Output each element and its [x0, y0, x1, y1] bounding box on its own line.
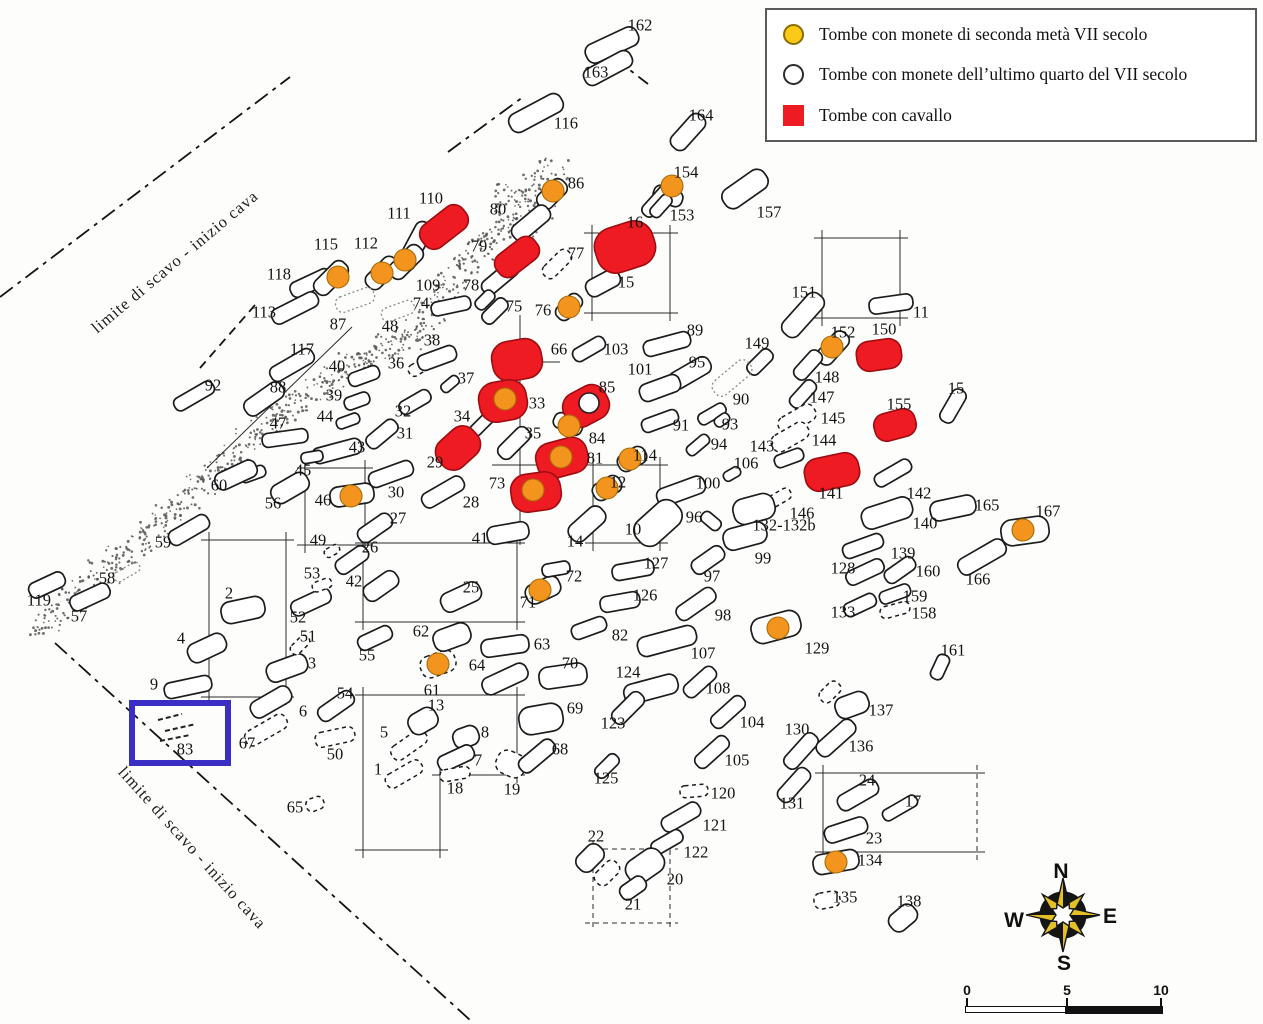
tomb-number: 127 [644, 554, 669, 573]
tomb-number: 79 [471, 237, 488, 256]
compass-rose-icon: N E W S [1003, 853, 1123, 973]
coin-marker-dot [327, 266, 349, 288]
tomb-number: 120 [711, 784, 736, 803]
tomb-number: 167 [1036, 502, 1061, 521]
tomb-number: 2 [225, 584, 233, 603]
tomb-number: 49 [310, 531, 327, 550]
legend-label: Tombe con monete di seconda metà VII sec… [819, 24, 1147, 45]
tomb-number: 45 [295, 461, 312, 480]
tomb-number: 15 [618, 273, 635, 292]
tomb-number: 125 [594, 769, 619, 788]
red-square-icon [781, 105, 805, 126]
scale-label-5: 5 [1063, 982, 1071, 998]
tomb-number: 90 [733, 390, 750, 409]
tomb-number: 25 [463, 578, 480, 597]
tomb-shape [166, 512, 212, 548]
tomb-number: 121 [703, 816, 728, 835]
tomb-shape [570, 615, 609, 641]
tomb-number: 111 [387, 204, 411, 223]
coin-marker-dot [550, 446, 572, 468]
tomb-number: 70 [562, 654, 579, 673]
tomb-shape [479, 661, 530, 698]
tomb-number: 5 [380, 723, 388, 742]
tomb-number: 51 [300, 627, 317, 646]
tomb-shape [430, 295, 472, 317]
tomb-number: 94 [711, 435, 728, 454]
tomb-number: 158 [912, 604, 937, 623]
tomb-number: 26 [362, 538, 379, 557]
tomb-number: 134 [858, 851, 883, 870]
tomb-number: 12 [610, 473, 627, 492]
tomb-number: 99 [755, 549, 772, 568]
tomb-number: 7 [474, 751, 482, 770]
tomb-number: 64 [469, 656, 486, 675]
tomb-shape [430, 620, 473, 654]
tomb-number: 113 [252, 303, 276, 322]
tomb-number: 46 [315, 491, 332, 510]
tomb-number: 98 [715, 606, 732, 625]
tomb-number: 47 [270, 414, 287, 433]
tomb-number: 108 [706, 679, 731, 698]
scale-bar-segment-light [965, 1006, 1066, 1013]
tomb-number: 161 [941, 641, 966, 660]
tomb-shape [659, 800, 703, 835]
tomb-shape [673, 585, 718, 623]
tomb-number: 82 [612, 626, 629, 645]
tomb-shape [264, 651, 310, 684]
coin-marker-dot [340, 485, 362, 507]
tomb-number: 65 [287, 798, 304, 817]
tomb-number: 17 [905, 792, 922, 811]
tomb-shape [685, 432, 712, 457]
tomb-number: 165 [975, 496, 1000, 515]
tomb-number: 24 [859, 771, 876, 790]
compass-north-label: N [1053, 860, 1068, 883]
tomb-number: 152 [831, 323, 856, 342]
legend-item-coins-second-half: Tombe con monete di seconda metà VII sec… [767, 24, 1255, 45]
tomb-number: 37 [458, 369, 475, 388]
tomb-shape [163, 674, 213, 700]
tomb-number: 18 [447, 779, 464, 798]
tomb-number: 145 [821, 409, 846, 428]
tomb-number: 84 [589, 429, 606, 448]
tomb-number: 66 [551, 340, 568, 359]
tomb-number: 115 [314, 235, 338, 254]
tomb-number: 112 [354, 234, 378, 253]
compass-west-label: W [1004, 909, 1024, 932]
tomb-shape [570, 334, 607, 364]
tomb-number: 149 [745, 334, 770, 353]
tomb-number: 50 [327, 745, 344, 764]
tomb-number: 140 [913, 514, 938, 533]
tomb-number: 22 [588, 827, 605, 846]
tomb-number: 8 [481, 723, 489, 742]
tomb-number: 126 [633, 586, 658, 605]
tomb-number: 78 [463, 276, 480, 295]
tomb-number: 32 [395, 402, 412, 421]
tomb-number: 67 [239, 734, 256, 753]
tomb-number: 68 [552, 740, 569, 759]
tomb-number: 96 [686, 508, 703, 527]
tomb-number: 109 [416, 276, 441, 295]
tomb-number: 154 [674, 163, 699, 182]
tomb-number: 138 [897, 892, 922, 911]
tomb-number: 71 [520, 593, 537, 612]
tomb-number: 131 [780, 794, 805, 813]
scale-bar-segment-dark [1065, 1006, 1163, 1014]
legend-label: Tombe con cavallo [819, 105, 952, 126]
coin-marker-dot [522, 479, 544, 501]
tomb-number: 153 [670, 206, 695, 225]
tomb-shape [489, 336, 545, 384]
tomb-number: 93 [722, 415, 739, 434]
tomb-number: 43 [349, 438, 366, 457]
tomb-number: 129 [805, 639, 830, 658]
tomb-number: 139 [891, 544, 916, 563]
tomb-number: 117 [290, 340, 314, 359]
tomb-number: 164 [689, 106, 714, 125]
tomb-number: 123 [601, 714, 626, 733]
tomb-number: 142 [907, 484, 932, 503]
tomb-number: 87 [330, 315, 347, 334]
scale-bar: 0 5 10 [956, 982, 1171, 1018]
tomb-number: 35 [525, 424, 542, 443]
tomb-number: 75 [506, 297, 523, 316]
yellow-circle-icon [781, 24, 805, 45]
tomb-number: 42 [346, 572, 363, 591]
tomb-number: 118 [267, 265, 291, 284]
tomb-number: 95 [689, 353, 706, 372]
late-coin-marker-circle [579, 393, 599, 413]
tomb-number: 56 [265, 494, 282, 513]
compass-south-label: S [1057, 952, 1071, 973]
tomb-number: 105 [725, 751, 750, 770]
tomb-number: 76 [535, 301, 552, 320]
tomb-number: 62 [413, 622, 430, 641]
tomb-number: 114 [633, 446, 657, 465]
tomb-shape [822, 815, 869, 845]
tomb-number: 13 [428, 696, 445, 715]
coin-marker-dot [371, 262, 393, 284]
tomb-number: 57 [71, 607, 88, 626]
legend-item-horse: Tombe con cavallo [767, 105, 1255, 126]
tomb-number: 110 [419, 189, 443, 208]
tomb-number: 89 [687, 321, 704, 340]
tomb-number: 163 [584, 63, 609, 82]
tomb-number: 137 [869, 701, 894, 720]
tomb-shape [699, 509, 724, 532]
legend-label: Tombe con monete dell’ultimo quarto del … [819, 64, 1187, 85]
tomb-number: 103 [604, 340, 629, 359]
coin-marker-dot [394, 249, 416, 271]
tomb-number: 150 [872, 320, 897, 339]
tomb-number: 160 [916, 562, 941, 581]
tomb-number: 128 [831, 559, 856, 578]
tomb-number: 39 [326, 386, 343, 405]
tomb-number: 33 [529, 394, 546, 413]
tomb-number: 85 [599, 378, 616, 397]
tomb-number: 148 [815, 368, 840, 387]
tomb-number: 6 [299, 702, 307, 721]
tomb-number: 104 [740, 713, 765, 732]
tomb-shape [642, 330, 693, 358]
tomb-number: 52 [290, 608, 307, 627]
tomb-shape [868, 293, 914, 315]
tomb-shape [841, 532, 886, 560]
tomb-number: 122 [684, 843, 709, 862]
tomb-number: 30 [388, 483, 405, 502]
tomb-number: 14 [567, 532, 584, 551]
tomb-number: 21 [625, 895, 642, 914]
tomb-number: 124 [616, 663, 641, 682]
tomb-number: 81 [587, 449, 604, 468]
scale-label-10: 10 [1153, 982, 1169, 998]
tomb-number: 116 [554, 114, 578, 133]
coin-marker-dot [558, 296, 580, 318]
tomb-number: 73 [489, 474, 506, 493]
tomb-shape [333, 286, 376, 315]
tomb-83-fragments [158, 714, 196, 741]
legend-box: Tombe con monete di seconda metà VII sec… [765, 8, 1257, 142]
tomb-shape [335, 412, 361, 431]
tomb-shape [343, 390, 372, 411]
tomb-number: 11 [913, 303, 929, 322]
tomb-number: 144 [812, 431, 837, 450]
tomb-number: 151 [792, 283, 817, 302]
tomb-number: 100 [696, 474, 721, 493]
tomb-number: 3 [308, 654, 316, 673]
tomb-shape [480, 634, 530, 659]
compass-east-label: E [1103, 905, 1117, 928]
tomb-shape [304, 795, 325, 813]
tomb-number: 41 [472, 529, 489, 548]
tomb-number: 132-132b [752, 516, 815, 535]
tomb-number: 80 [490, 200, 507, 219]
legend-item-coins-last-quarter: Tombe con monete dell’ultimo quarto del … [767, 64, 1255, 85]
tomb-number: 1 [374, 760, 382, 779]
tomb-number: 107 [691, 644, 716, 663]
tomb-shape [517, 701, 565, 736]
tomb-number: 4 [177, 629, 185, 648]
tomb-shape [635, 624, 698, 659]
tomb-number: 29 [427, 453, 444, 472]
tomb-number: 91 [673, 416, 690, 435]
tomb-shape [363, 417, 400, 452]
tomb-number: 130 [785, 720, 810, 739]
tomb-number: 63 [534, 635, 551, 654]
tomb-number: 10 [625, 520, 642, 539]
tomb-number: 23 [866, 829, 883, 848]
tomb-number: 9 [150, 675, 158, 694]
white-circle-icon [781, 64, 805, 85]
tomb-shape [855, 337, 904, 373]
tomb-number: 106 [734, 454, 759, 473]
tomb-number: 135 [833, 888, 858, 907]
tomb-number: 136 [849, 737, 874, 756]
tomb-number: 54 [337, 684, 354, 703]
coin-marker-dot [427, 653, 449, 675]
tomb-number: 58 [99, 569, 116, 588]
tomb-number: 147 [810, 388, 835, 407]
tomb-number: 19 [504, 780, 521, 799]
coin-marker-dot [542, 180, 564, 202]
tomb-shape [486, 520, 530, 545]
tomb-number: 44 [317, 407, 334, 426]
tomb-number: 59 [155, 533, 172, 552]
tomb-number: 60 [211, 476, 228, 495]
tomb-number: 157 [757, 203, 782, 222]
tomb-number: 16 [627, 213, 644, 232]
tomb-number: 77 [568, 244, 585, 263]
tomb-number: 97 [704, 567, 721, 586]
tomb-number: 119 [27, 591, 51, 610]
tomb-number: 155 [887, 395, 912, 414]
tomb-number: 101 [628, 360, 653, 379]
coin-marker-dot [558, 415, 580, 437]
tomb-shape [383, 758, 425, 791]
tomb-number: 69 [567, 699, 584, 718]
tomb-shape [360, 568, 401, 605]
tomb-number: 74 [413, 294, 430, 313]
tomb-number: 55 [359, 646, 376, 665]
tomb-number: 27 [390, 509, 407, 528]
tomb-number: 92 [205, 376, 222, 395]
tomb-number: 38 [424, 331, 441, 350]
tomb-shape [419, 474, 467, 511]
coin-marker-dot [825, 851, 847, 873]
tomb-number: 48 [382, 317, 399, 336]
tomb-number: 141 [819, 484, 844, 503]
tomb-number: 31 [397, 424, 414, 443]
tomb-number: 88 [270, 378, 287, 397]
tomb-number: 72 [566, 567, 583, 586]
tomb-number: 28 [463, 493, 480, 512]
coin-marker-dot [767, 617, 789, 639]
tomb-number: 166 [966, 570, 991, 589]
tomb-number: 86 [568, 174, 585, 193]
tomb-number: 20 [667, 870, 684, 889]
tomb-number: 40 [329, 357, 346, 376]
tomb-number: 83 [177, 740, 194, 759]
scale-label-0: 0 [963, 982, 971, 998]
tomb-number: 53 [304, 564, 321, 583]
tomb-shape [247, 683, 294, 721]
site-plan-page: 1621631161648615415315711011180791181151… [0, 0, 1263, 1024]
tomb-shape [185, 630, 230, 665]
tomb-number: 133 [831, 603, 856, 622]
tomb-shape [589, 216, 660, 278]
coin-marker-dot [1012, 519, 1034, 541]
tomb-number: 34 [454, 407, 471, 426]
tomb-number: 15 [948, 379, 965, 398]
coin-marker-dot [494, 388, 516, 410]
tomb-number: 36 [388, 354, 405, 373]
tomb-shape [680, 784, 709, 798]
tomb-number: 162 [628, 16, 653, 35]
